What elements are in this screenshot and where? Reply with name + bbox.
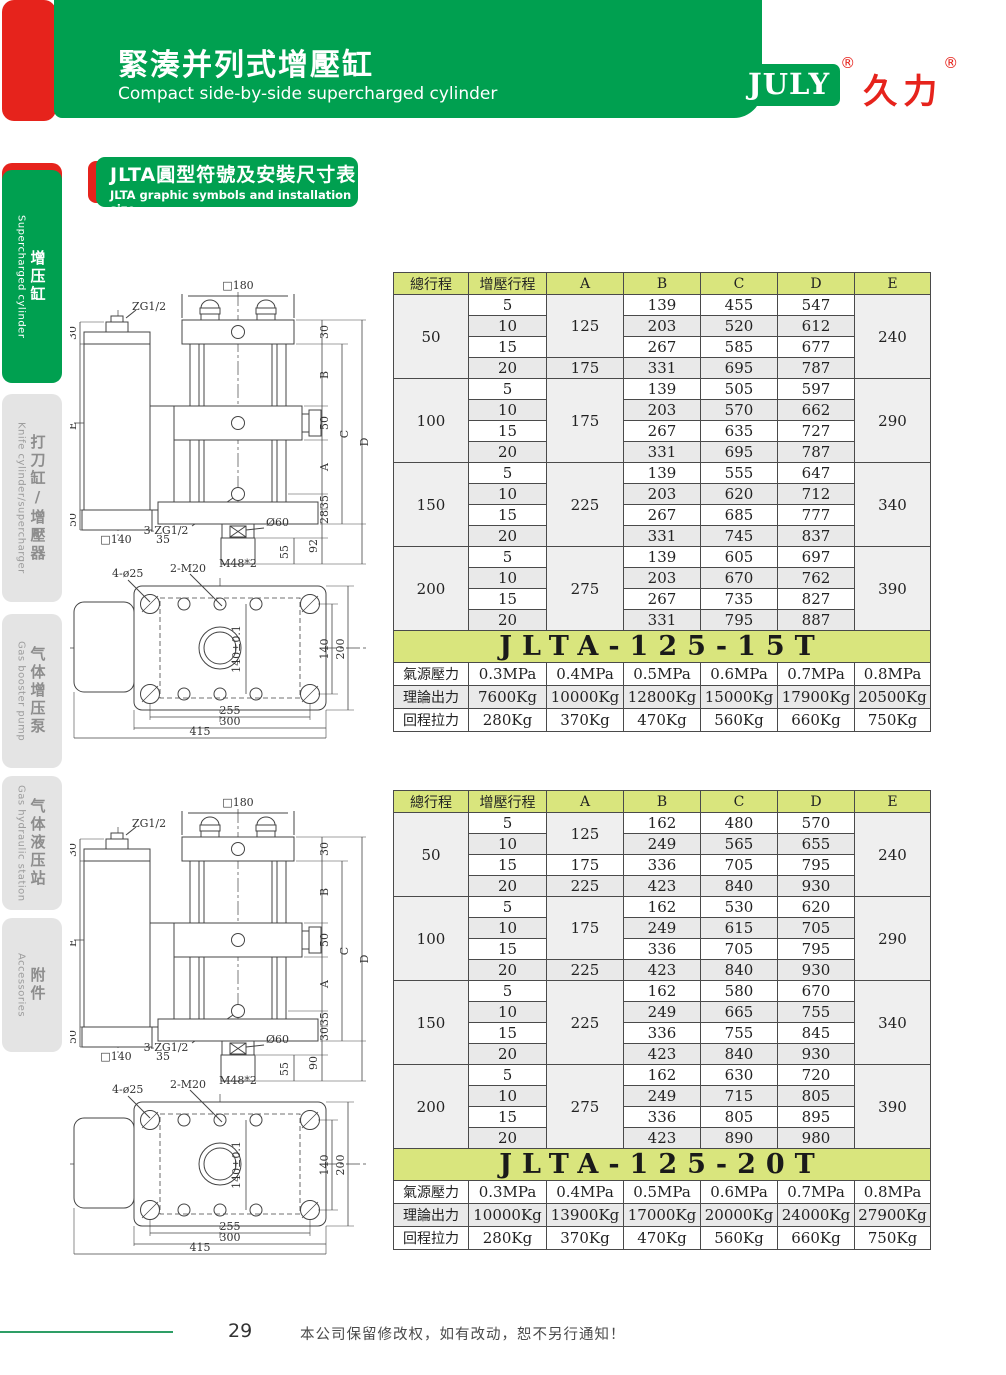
table-cell: 530 bbox=[701, 897, 778, 918]
table-cell: 139 bbox=[624, 463, 701, 484]
table-cell: 267 bbox=[624, 589, 701, 610]
column-header: C bbox=[701, 273, 778, 295]
dim-label: 140 bbox=[318, 639, 331, 660]
table-cell: 162 bbox=[624, 981, 701, 1002]
dimension-table-jlta-125-15t: 總行程增壓行程ABCDE5051251394555472401020352061… bbox=[393, 272, 931, 732]
table-cell: 805 bbox=[778, 1086, 855, 1107]
table-cell: 12800Kg bbox=[624, 686, 701, 709]
table-cell: 795 bbox=[701, 610, 778, 631]
table-cell: 480 bbox=[701, 813, 778, 834]
table-cell: 0.3MPa bbox=[469, 663, 547, 686]
table-cell: 336 bbox=[624, 1107, 701, 1128]
table-cell: 267 bbox=[624, 337, 701, 358]
table-row: 15336805895 bbox=[394, 1107, 931, 1128]
column-header: 總行程 bbox=[394, 791, 469, 813]
table-cell: 390 bbox=[855, 1065, 931, 1149]
table-cell: 890 bbox=[701, 1128, 778, 1149]
table-cell: 175 bbox=[547, 897, 624, 960]
table-cell: 705 bbox=[701, 855, 778, 876]
dim-label: D bbox=[358, 954, 371, 963]
table-cell: 750Kg bbox=[855, 1227, 931, 1250]
table-cell: 回程拉力 bbox=[394, 709, 469, 732]
cylinder-side-view-drawing: □180 ZG1/2 30 E 50 □140 35 30 B 50 A 35 … bbox=[70, 793, 388, 1085]
drawing-1-flange-view: 4-ø25 2-M20 140±0.1 140 200 255 300 415 bbox=[70, 562, 388, 744]
dim-label: 50 bbox=[318, 416, 331, 430]
table-cell: 655 bbox=[778, 834, 855, 855]
table-cell: 630 bbox=[701, 1065, 778, 1086]
sidebar-tab-label-zh: 增压缸 bbox=[28, 250, 49, 304]
table-cell: 555 bbox=[701, 463, 778, 484]
table-cell: 20 bbox=[469, 1044, 547, 1065]
table-cell: 10 bbox=[469, 834, 547, 855]
spec-row: 理論出力10000Kg13900Kg17000Kg20000Kg24000Kg2… bbox=[394, 1204, 931, 1227]
dim-label: 30 bbox=[318, 1027, 331, 1041]
table-cell: 162 bbox=[624, 1065, 701, 1086]
table-cell: 340 bbox=[855, 981, 931, 1065]
table-cell: 50 bbox=[394, 813, 469, 897]
table-header-row: 總行程增壓行程ABCDE bbox=[394, 273, 931, 295]
sidebar-tab-label-en: Gas booster pump bbox=[16, 641, 27, 741]
table-cell: 20 bbox=[469, 526, 547, 547]
table-cell: 240 bbox=[855, 295, 931, 379]
table-cell: 795 bbox=[778, 939, 855, 960]
table-cell: 331 bbox=[624, 358, 701, 379]
table-cell: 139 bbox=[624, 379, 701, 400]
table-cell: 10 bbox=[469, 1002, 547, 1023]
table-cell: 125 bbox=[547, 813, 624, 855]
dimension-table-jlta-125-20t: 總行程增壓行程ABCDE5051251624805702401024956565… bbox=[393, 790, 931, 1250]
table-cell: 615 bbox=[701, 918, 778, 939]
table-row: 1005175139505597290 bbox=[394, 379, 931, 400]
table-row: 15267585677 bbox=[394, 337, 931, 358]
table-cell: 50 bbox=[394, 295, 469, 379]
column-header: A bbox=[547, 273, 624, 295]
dim-label: □180 bbox=[222, 279, 253, 292]
table-cell: 423 bbox=[624, 1044, 701, 1065]
table-cell: 280Kg bbox=[469, 1227, 547, 1250]
table-cell: 712 bbox=[778, 484, 855, 505]
table-cell: 125 bbox=[547, 295, 624, 358]
table-cell: 225 bbox=[547, 960, 624, 981]
dim-label: 3-ZG1/2 bbox=[144, 524, 189, 537]
table-cell: 887 bbox=[778, 610, 855, 631]
table-cell: 470Kg bbox=[624, 709, 701, 732]
table-cell: 0.5MPa bbox=[624, 1181, 701, 1204]
table-cell: 331 bbox=[624, 610, 701, 631]
table-cell: 15 bbox=[469, 1107, 547, 1128]
table-row: 10249565655 bbox=[394, 834, 931, 855]
sidebar-tab-knife-cylinder[interactable]: 打刀缸/增壓器 Knife cylinder/supercharger bbox=[2, 394, 62, 602]
table-cell: 20 bbox=[469, 610, 547, 631]
sidebar-tab-accessories[interactable]: 附件 Accessories bbox=[2, 918, 62, 1052]
table-cell: 840 bbox=[701, 1044, 778, 1065]
sidebar-tab-label-en: Knife cylinder/supercharger bbox=[16, 422, 27, 574]
table-cell: 20 bbox=[469, 960, 547, 981]
table-cell: 20500Kg bbox=[855, 686, 931, 709]
table-cell: 423 bbox=[624, 876, 701, 897]
sidebar-tab-label-zh: 附件 bbox=[28, 967, 49, 1003]
drawing-2-side-view: □180 ZG1/2 30 E 50 □140 35 30 B 50 A 35 … bbox=[70, 793, 388, 1089]
table-cell: 5 bbox=[469, 813, 547, 834]
table-cell: 647 bbox=[778, 463, 855, 484]
table-row: 10203670762 bbox=[394, 568, 931, 589]
table-cell: 930 bbox=[778, 1044, 855, 1065]
table-cell: 290 bbox=[855, 897, 931, 981]
dim-label: Ø60 bbox=[266, 1033, 289, 1046]
table-cell: 20 bbox=[469, 1128, 547, 1149]
table-cell: 0.3MPa bbox=[469, 1181, 547, 1204]
brand-logo: JULY ® 久力 ® bbox=[738, 56, 958, 113]
footer-divider bbox=[0, 1331, 173, 1333]
table-cell: 203 bbox=[624, 400, 701, 421]
dim-label: Ø60 bbox=[266, 516, 289, 529]
column-header: E bbox=[855, 791, 931, 813]
table-cell: 745 bbox=[701, 526, 778, 547]
table-cell: 336 bbox=[624, 939, 701, 960]
table-cell: 27900Kg bbox=[855, 1204, 931, 1227]
table-cell: 827 bbox=[778, 589, 855, 610]
table-cell: 787 bbox=[778, 442, 855, 463]
table-row: 20331695787 bbox=[394, 442, 931, 463]
cylinder-flange-view-drawing: 4-ø25 2-M20 140±0.1 140 200 255 300 415 bbox=[70, 562, 388, 740]
table-cell: 5 bbox=[469, 897, 547, 918]
column-header: C bbox=[701, 791, 778, 813]
sidebar-tab-label-zh: 气体增压泵 bbox=[28, 646, 49, 736]
table-row: 20423890980 bbox=[394, 1128, 931, 1149]
table-cell: 162 bbox=[624, 897, 701, 918]
table-row: 20331745837 bbox=[394, 526, 931, 547]
dim-label: 200 bbox=[334, 639, 347, 660]
table-cell: 0.6MPa bbox=[701, 1181, 778, 1204]
table-cell: 15 bbox=[469, 855, 547, 876]
table-cell: 560Kg bbox=[701, 709, 778, 732]
table-cell: 720 bbox=[778, 1065, 855, 1086]
dim-label: 3-ZG1/2 bbox=[144, 1041, 189, 1054]
table-cell: 665 bbox=[701, 1002, 778, 1023]
table-cell: 225 bbox=[547, 981, 624, 1065]
dim-label: 50 bbox=[70, 1030, 79, 1044]
table-cell: 787 bbox=[778, 358, 855, 379]
table-row: 10249665755 bbox=[394, 1002, 931, 1023]
table-cell: 203 bbox=[624, 568, 701, 589]
table-row: 15267735827 bbox=[394, 589, 931, 610]
table-cell: 0.5MPa bbox=[624, 663, 701, 686]
table-cell: 930 bbox=[778, 876, 855, 897]
table-row: 20331795887 bbox=[394, 610, 931, 631]
table-row: 15336755845 bbox=[394, 1023, 931, 1044]
table-cell: 840 bbox=[701, 960, 778, 981]
header-red-block bbox=[2, 0, 56, 121]
dim-label: 300 bbox=[220, 715, 241, 728]
drawing-1-side-view: □180 ZG1/2 30 E 50 □140 35 30 B 50 A 35 … bbox=[70, 276, 388, 572]
dim-label: 4-ø25 bbox=[112, 567, 143, 580]
table-cell: 5 bbox=[469, 1065, 547, 1086]
table-row: 2005275139605697390 bbox=[394, 547, 931, 568]
page-title-zh: 緊湊并列式增壓缸 bbox=[118, 40, 374, 84]
sidebar-tab-label-zh: 气体液压站 bbox=[28, 798, 49, 888]
cylinder-flange-view-drawing: 4-ø25 2-M20 140±0.1 140 200 255 300 415 bbox=[70, 1078, 388, 1256]
dim-label: 90 bbox=[307, 1056, 320, 1070]
dim-label: A bbox=[318, 979, 331, 989]
column-header: D bbox=[778, 791, 855, 813]
table-row: 2005275162630720390 bbox=[394, 1065, 931, 1086]
table-cell: 249 bbox=[624, 918, 701, 939]
table-cell: 5 bbox=[469, 463, 547, 484]
dim-label: 55 bbox=[278, 545, 291, 559]
table-cell: 17000Kg bbox=[624, 1204, 701, 1227]
sidebar-tab-label-en: Gas hydraulic station bbox=[16, 785, 27, 902]
dim-label: □180 bbox=[222, 796, 253, 809]
table-cell: 10 bbox=[469, 1086, 547, 1107]
table-cell: 660Kg bbox=[778, 1227, 855, 1250]
dim-label: 2-M20 bbox=[170, 1078, 206, 1091]
table-cell: 267 bbox=[624, 421, 701, 442]
sidebar-tab-supercharged-cylinder[interactable]: 增压缸 Supercharged cylinder bbox=[2, 170, 62, 383]
dim-label: 300 bbox=[220, 1231, 241, 1244]
table-cell: 331 bbox=[624, 526, 701, 547]
table-cell: 620 bbox=[778, 897, 855, 918]
table-cell: 203 bbox=[624, 484, 701, 505]
dimension-table: 總行程增壓行程ABCDE5051251624805702401024956565… bbox=[393, 790, 931, 1250]
table-cell: 20 bbox=[469, 358, 547, 379]
table-cell: 15 bbox=[469, 939, 547, 960]
table-cell: 390 bbox=[855, 547, 931, 631]
table-cell: 735 bbox=[701, 589, 778, 610]
dim-label: 140 bbox=[318, 1155, 331, 1176]
table-row: 10203570662 bbox=[394, 400, 931, 421]
table-cell: 777 bbox=[778, 505, 855, 526]
table-cell: 15 bbox=[469, 1023, 547, 1044]
table-cell: 670 bbox=[778, 981, 855, 1002]
cylinder-side-view-drawing: □180 ZG1/2 30 E 50 □140 35 30 B 50 A 35 … bbox=[70, 276, 388, 568]
table-cell: 470Kg bbox=[624, 1227, 701, 1250]
table-cell: 547 bbox=[778, 295, 855, 316]
table-cell: 10 bbox=[469, 400, 547, 421]
footer-note: 本公司保留修改权，如有改动，恕不另行通知！ bbox=[300, 1323, 626, 1344]
table-cell: 705 bbox=[701, 939, 778, 960]
table-cell: 275 bbox=[547, 1065, 624, 1149]
table-row: 505125139455547240 bbox=[394, 295, 931, 316]
dim-label: 2-M20 bbox=[170, 562, 206, 575]
table-cell: 290 bbox=[855, 379, 931, 463]
table-cell: 805 bbox=[701, 1107, 778, 1128]
table-cell: 423 bbox=[624, 960, 701, 981]
table-cell: 660Kg bbox=[778, 709, 855, 732]
table-cell: 249 bbox=[624, 1002, 701, 1023]
column-header: B bbox=[624, 791, 701, 813]
dim-label: 92 bbox=[307, 539, 320, 553]
table-cell: 17900Kg bbox=[778, 686, 855, 709]
dim-label: 30 bbox=[70, 326, 79, 340]
table-cell: 0.7MPa bbox=[778, 663, 855, 686]
dim-label: 35 bbox=[318, 1012, 331, 1026]
sidebar-tab-gas-booster-pump[interactable]: 气体增压泵 Gas booster pump bbox=[2, 614, 62, 768]
table-cell: 5 bbox=[469, 379, 547, 400]
catalog-page: 緊湊并列式增壓缸 Compact side-by-side supercharg… bbox=[0, 0, 1006, 1375]
table-cell: 175 bbox=[547, 358, 624, 379]
table-cell: 0.8MPa bbox=[855, 1181, 931, 1204]
dim-label: 4-ø25 bbox=[112, 1083, 143, 1096]
table-cell: 570 bbox=[778, 813, 855, 834]
table-cell: 5 bbox=[469, 547, 547, 568]
table-cell: 677 bbox=[778, 337, 855, 358]
column-header: A bbox=[547, 791, 624, 813]
table-cell: 340 bbox=[855, 463, 931, 547]
table-cell: 10 bbox=[469, 918, 547, 939]
table-row: 20225423840930 bbox=[394, 876, 931, 897]
model-title: JLTA-125-20T bbox=[394, 1149, 931, 1181]
column-header: 增壓行程 bbox=[469, 273, 547, 295]
table-cell: 275 bbox=[547, 547, 624, 631]
table-cell: 570 bbox=[701, 400, 778, 421]
table-cell: 845 bbox=[778, 1023, 855, 1044]
table-cell: 100 bbox=[394, 897, 469, 981]
column-header: 總行程 bbox=[394, 273, 469, 295]
table-cell: 0.6MPa bbox=[701, 663, 778, 686]
table-row: 10203520612 bbox=[394, 316, 931, 337]
table-row: 15267685777 bbox=[394, 505, 931, 526]
table-row: 1505225139555647340 bbox=[394, 463, 931, 484]
table-cell: 162 bbox=[624, 813, 701, 834]
table-row: 505125162480570240 bbox=[394, 813, 931, 834]
table-cell: 240 bbox=[855, 813, 931, 897]
table-cell: 565 bbox=[701, 834, 778, 855]
table-cell: 24000Kg bbox=[778, 1204, 855, 1227]
sidebar-tab-label-en: Accessories bbox=[16, 953, 27, 1017]
dim-label: A bbox=[318, 462, 331, 472]
table-cell: 755 bbox=[778, 1002, 855, 1023]
table-cell: 280Kg bbox=[469, 709, 547, 732]
table-cell: 895 bbox=[778, 1107, 855, 1128]
dim-label: B bbox=[318, 371, 331, 379]
table-cell: 15 bbox=[469, 589, 547, 610]
table-row: 1005175162530620290 bbox=[394, 897, 931, 918]
table-cell: 520 bbox=[701, 316, 778, 337]
dim-label: 30 bbox=[70, 843, 79, 857]
table-cell: 15 bbox=[469, 421, 547, 442]
table-cell: 580 bbox=[701, 981, 778, 1002]
dim-label: 140±0.1 bbox=[230, 1141, 243, 1189]
column-header: 增壓行程 bbox=[469, 791, 547, 813]
dim-label: 55 bbox=[278, 1062, 291, 1076]
table-cell: 15000Kg bbox=[701, 686, 778, 709]
table-cell: 回程拉力 bbox=[394, 1227, 469, 1250]
dim-label: C bbox=[338, 947, 351, 955]
column-header: B bbox=[624, 273, 701, 295]
column-header: E bbox=[855, 273, 931, 295]
table-cell: 氣源壓力 bbox=[394, 1181, 469, 1204]
table-cell: 10 bbox=[469, 568, 547, 589]
section-title-zh: JLTA圓型符號及安裝尺寸表 bbox=[110, 160, 358, 187]
table-cell: 705 bbox=[778, 918, 855, 939]
table-cell: 氣源壓力 bbox=[394, 663, 469, 686]
table-cell: 249 bbox=[624, 1086, 701, 1107]
table-cell: 203 bbox=[624, 316, 701, 337]
brand-logo-zh: 久力 bbox=[863, 64, 943, 113]
table-row: 10249615705 bbox=[394, 918, 931, 939]
table-cell: 13900Kg bbox=[547, 1204, 624, 1227]
spec-row: 回程拉力280Kg370Kg470Kg560Kg660Kg750Kg bbox=[394, 709, 931, 732]
dim-label: D bbox=[358, 437, 371, 446]
dim-label: 28 bbox=[318, 510, 331, 524]
table-cell: 15 bbox=[469, 505, 547, 526]
table-cell: 597 bbox=[778, 379, 855, 400]
page-title-en: Compact side-by-side supercharged cylind… bbox=[118, 84, 497, 104]
table-cell: 20000Kg bbox=[701, 1204, 778, 1227]
drawing-2-flange-view: 4-ø25 2-M20 140±0.1 140 200 255 300 415 bbox=[70, 1078, 388, 1260]
table-cell: 10000Kg bbox=[469, 1204, 547, 1227]
sidebar-tab-gas-hydraulic-station[interactable]: 气体液压站 Gas hydraulic station bbox=[2, 776, 62, 910]
section-title-en: JLTA graphic symbols and installation si… bbox=[110, 188, 358, 216]
table-cell: 662 bbox=[778, 400, 855, 421]
dim-label: 140±0.1 bbox=[230, 625, 243, 673]
dim-label: 200 bbox=[334, 1155, 347, 1176]
table-cell: 139 bbox=[624, 295, 701, 316]
table-cell: 0.8MPa bbox=[855, 663, 931, 686]
column-header: D bbox=[778, 273, 855, 295]
model-title-row: JLTA-125-20T bbox=[394, 1149, 931, 1181]
dim-label: □140 bbox=[100, 1050, 131, 1063]
table-cell: 20 bbox=[469, 876, 547, 897]
table-cell: 175 bbox=[547, 855, 624, 876]
table-row: 20423840930 bbox=[394, 1044, 931, 1065]
table-cell: 175 bbox=[547, 379, 624, 463]
table-cell: 695 bbox=[701, 442, 778, 463]
dim-label: 50 bbox=[318, 933, 331, 947]
table-cell: 837 bbox=[778, 526, 855, 547]
table-cell: 336 bbox=[624, 1023, 701, 1044]
table-cell: 331 bbox=[624, 442, 701, 463]
table-cell: 560Kg bbox=[701, 1227, 778, 1250]
table-cell: 0.4MPa bbox=[547, 663, 624, 686]
table-cell: 585 bbox=[701, 337, 778, 358]
table-cell: 267 bbox=[624, 505, 701, 526]
table-row: 15175336705795 bbox=[394, 855, 931, 876]
table-cell: 762 bbox=[778, 568, 855, 589]
table-row: 20225423840930 bbox=[394, 960, 931, 981]
dim-label: ZG1/2 bbox=[132, 817, 166, 830]
table-cell: 100 bbox=[394, 379, 469, 463]
table-cell: 225 bbox=[547, 876, 624, 897]
sidebar-tab-label-en: Supercharged cylinder bbox=[16, 215, 27, 338]
dim-label: 415 bbox=[190, 725, 211, 738]
table-row: 10249715805 bbox=[394, 1086, 931, 1107]
table-cell: 423 bbox=[624, 1128, 701, 1149]
table-row: 20175331695787 bbox=[394, 358, 931, 379]
dim-label: 30 bbox=[318, 325, 331, 339]
table-cell: 370Kg bbox=[547, 709, 624, 732]
table-row: 1505225162580670340 bbox=[394, 981, 931, 1002]
table-cell: 685 bbox=[701, 505, 778, 526]
brand-logo-en: JULY bbox=[738, 64, 840, 106]
spec-row: 氣源壓力0.3MPa0.4MPa0.5MPa0.6MPa0.7MPa0.8MPa bbox=[394, 1181, 931, 1204]
table-cell: 20 bbox=[469, 442, 547, 463]
table-cell: 620 bbox=[701, 484, 778, 505]
dim-label: □140 bbox=[100, 533, 131, 546]
table-cell: 635 bbox=[701, 421, 778, 442]
table-cell: 980 bbox=[778, 1128, 855, 1149]
table-cell: 727 bbox=[778, 421, 855, 442]
spec-row: 回程拉力280Kg370Kg470Kg560Kg660Kg750Kg bbox=[394, 1227, 931, 1250]
table-cell: 225 bbox=[547, 463, 624, 547]
table-cell: 5 bbox=[469, 981, 547, 1002]
table-cell: 605 bbox=[701, 547, 778, 568]
registered-mark-icon: ® bbox=[840, 56, 855, 71]
table-cell: 7600Kg bbox=[469, 686, 547, 709]
table-cell: 695 bbox=[701, 358, 778, 379]
table-cell: 0.7MPa bbox=[778, 1181, 855, 1204]
table-cell: 10 bbox=[469, 484, 547, 505]
